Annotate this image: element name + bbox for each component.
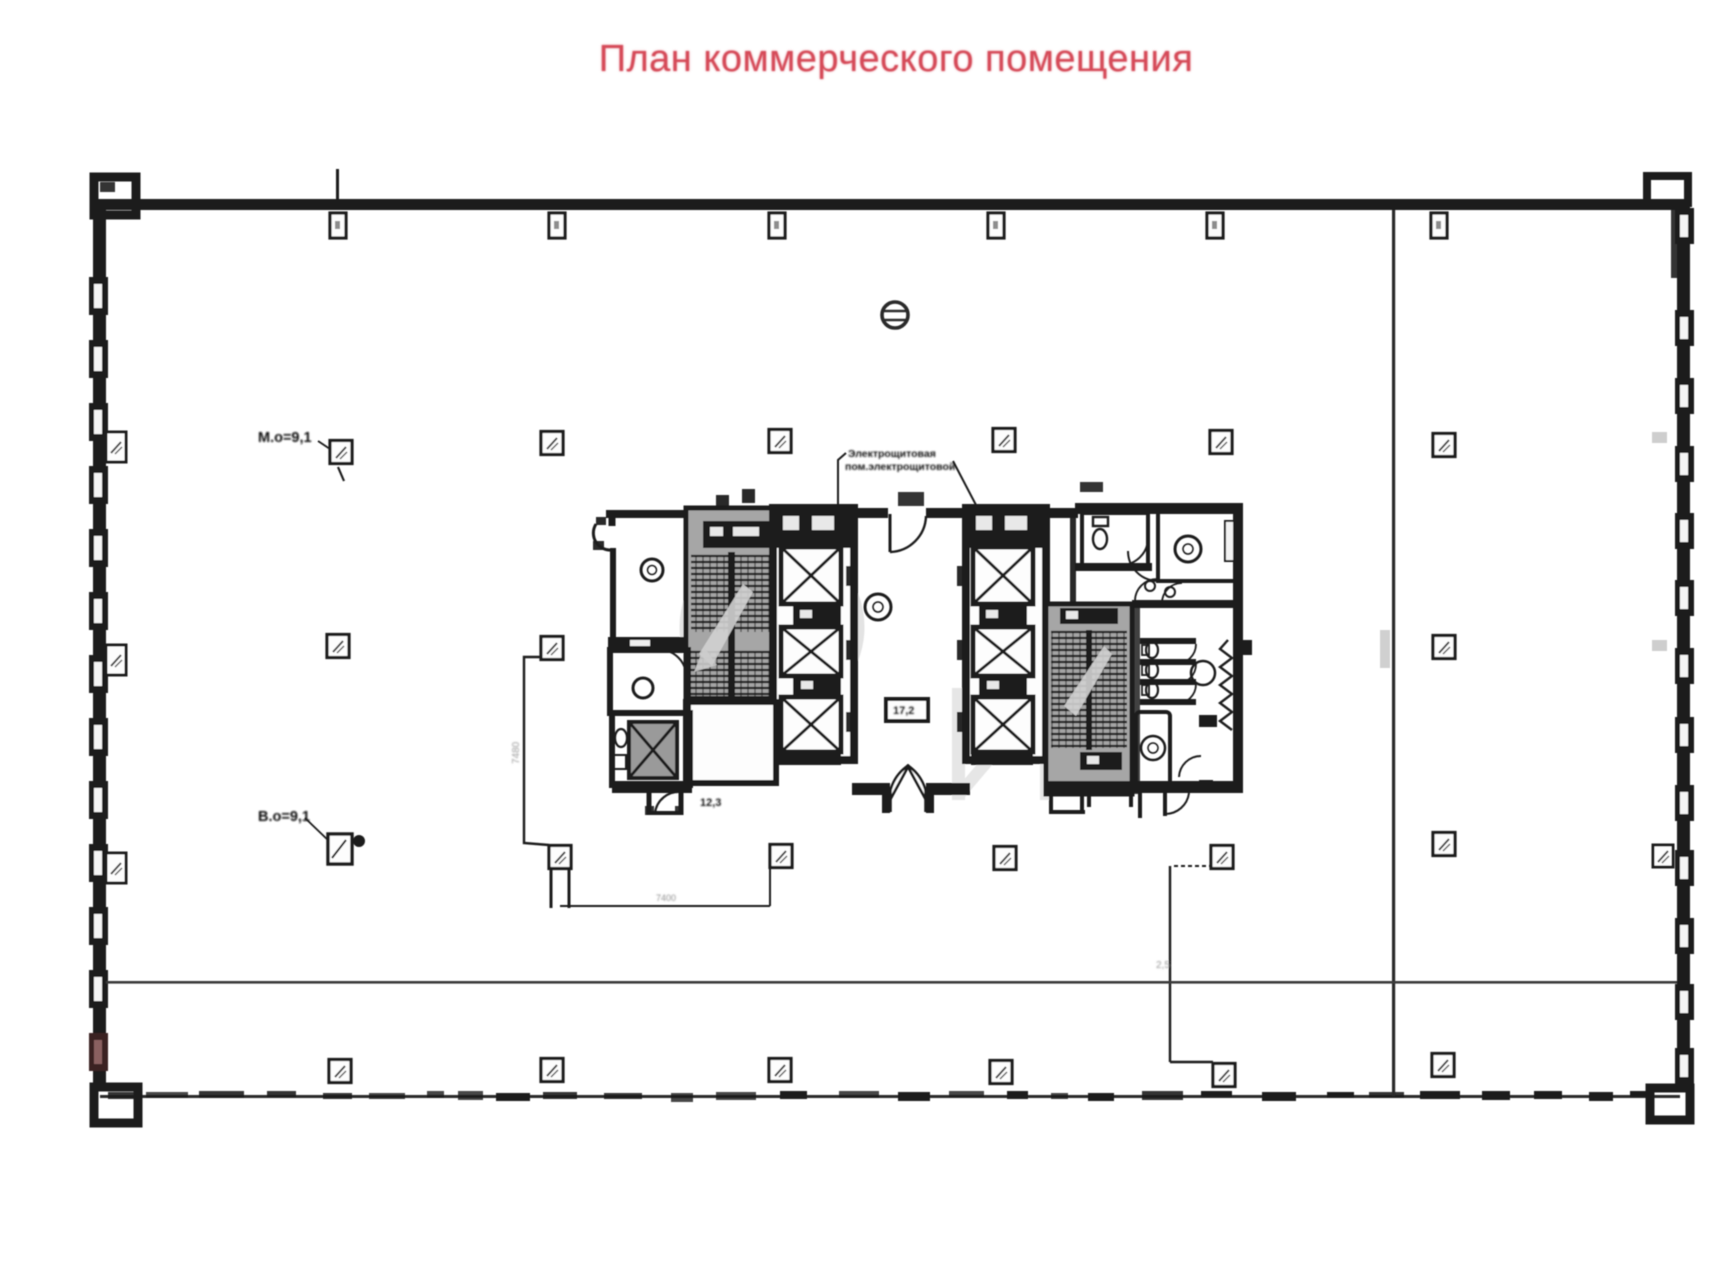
svg-text:7400: 7400 bbox=[656, 893, 676, 903]
svg-text:М.о=9,1: М.о=9,1 bbox=[258, 430, 312, 446]
svg-text:2,5: 2,5 bbox=[1156, 960, 1170, 971]
svg-text:7480: 7480 bbox=[511, 741, 522, 764]
svg-text:12,3: 12,3 bbox=[700, 797, 721, 809]
svg-text:17,2: 17,2 bbox=[893, 705, 914, 717]
svg-text:В.о=9,1: В.о=9,1 bbox=[258, 809, 310, 825]
svg-text:Электрощитовая: Электрощитовая bbox=[848, 448, 936, 460]
svg-text:пом.электрощитовой: пом.электрощитовой bbox=[845, 461, 955, 473]
